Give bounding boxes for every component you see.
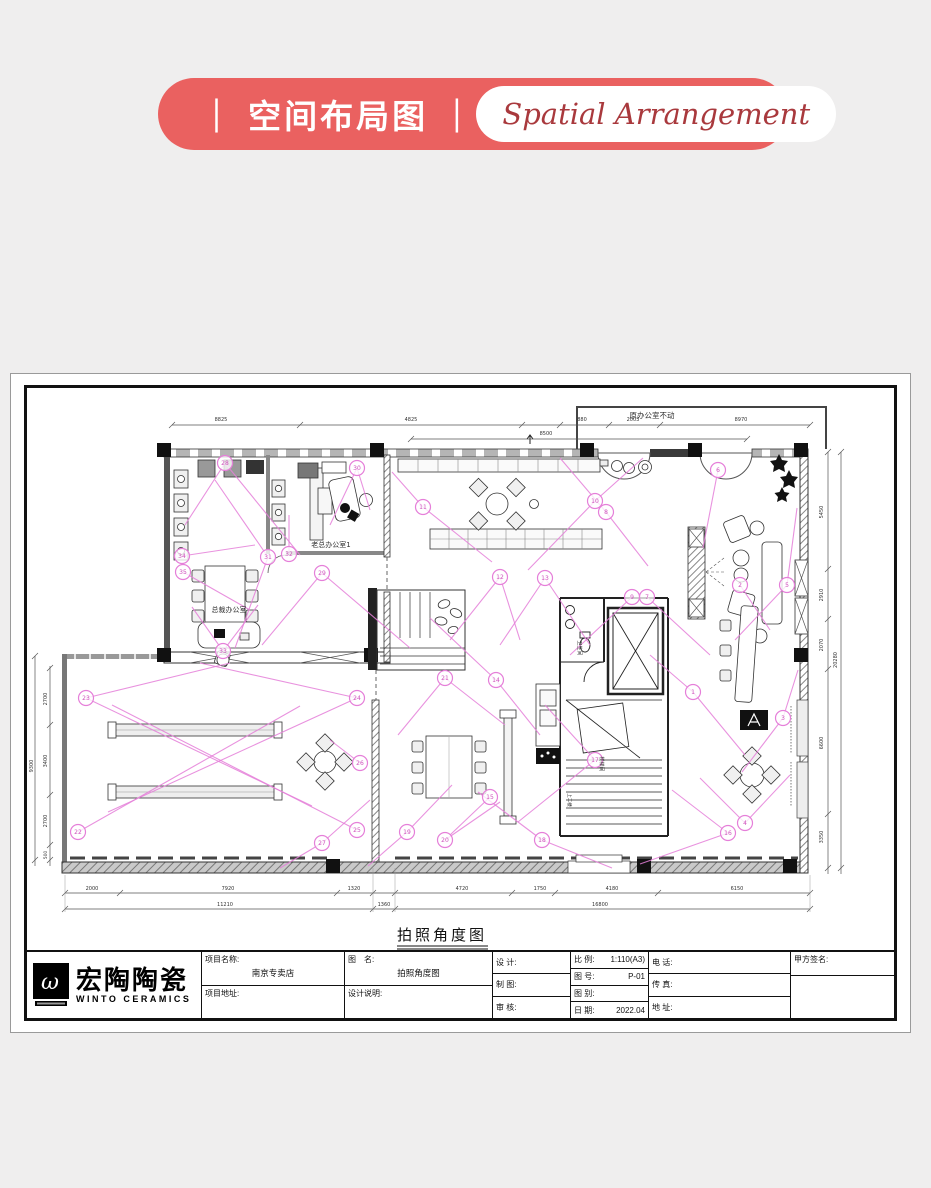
signature-cell: 甲方签名:: [791, 952, 894, 1018]
banner-subtitle-pill: Spatial Arrangement: [476, 86, 836, 142]
plan-annotation: 7920: [222, 886, 235, 892]
banner-title: ｜ 空间布局图 ｜: [200, 90, 476, 138]
camera-marker: 10: [588, 494, 603, 509]
sheet-frame: 1234567891011121314151617181920212223242…: [24, 385, 897, 1021]
plan-annotation: 16800: [592, 902, 608, 908]
camera-marker: 5: [780, 578, 795, 593]
svg-text:24: 24: [353, 695, 361, 702]
svg-text:18: 18: [538, 837, 546, 844]
sight-line: [398, 678, 445, 735]
camera-marker: 25: [350, 823, 365, 838]
type-label: 图 别:: [574, 988, 594, 999]
design-label: 设 计:: [496, 957, 516, 968]
plan-annotation: 上二楼: [566, 793, 573, 807]
signature-space: [791, 976, 894, 1018]
plan-annotation: 2000: [86, 886, 99, 892]
plan-annotation: 6600: [819, 737, 825, 750]
drawing-name-value: 拍照角度图: [348, 967, 489, 979]
plan-annotation: 11210: [217, 902, 233, 908]
draft-label: 制 图:: [496, 979, 516, 990]
sight-line: [262, 573, 322, 645]
plan-annotation: 500: [43, 851, 49, 860]
camera-marker: 33: [216, 644, 231, 659]
camera-marker: 13: [538, 571, 553, 586]
svg-text:33: 33: [219, 648, 227, 655]
scale-label: 比 例:: [574, 954, 594, 965]
svg-text:17: 17: [591, 757, 599, 764]
svg-text:27: 27: [318, 840, 326, 847]
camera-marker: 23: [79, 691, 94, 706]
plan-annotation: 卫生间: [576, 640, 583, 655]
camera-marker: 3: [776, 711, 791, 726]
camera-marker: 34: [175, 549, 190, 564]
sight-line: [496, 680, 540, 735]
staff-cell: 设 计: 制 图: 审 核:: [493, 952, 571, 1018]
contact-cell: 电 话: 传 真: 地 址:: [649, 952, 791, 1018]
svg-text:22: 22: [74, 829, 82, 836]
plan-annotation: 1750: [534, 886, 547, 892]
camera-marker: 31: [261, 550, 276, 565]
svg-text:25: 25: [353, 827, 361, 834]
plan-annotation: 3400: [43, 755, 49, 768]
svg-text:20: 20: [441, 837, 449, 844]
camera-marker: 26: [353, 756, 368, 771]
svg-text:16: 16: [724, 830, 732, 837]
sight-line: [445, 802, 500, 840]
plan-annotation: 8500: [540, 431, 553, 437]
svg-text:15: 15: [486, 794, 494, 801]
sight-line: [500, 578, 545, 645]
sight-line: [703, 470, 718, 548]
furniture-layer: [108, 435, 798, 824]
svg-text:28: 28: [221, 460, 229, 467]
section-banner: ｜ 空间布局图 ｜ Spatial Arrangement: [158, 78, 788, 150]
svg-text:19: 19: [403, 829, 411, 836]
plan-annotation: 1360: [378, 902, 391, 908]
camera-marker: 19: [400, 825, 415, 840]
camera-marker: 11: [416, 500, 431, 515]
plan-annotation: 2003: [627, 417, 640, 423]
camera-marker: 6: [711, 463, 726, 478]
sight-line: [606, 512, 648, 566]
logo-cell: ω 宏陶陶瓷 WINTO CERAMICS: [27, 952, 202, 1018]
plan-annotation: 880: [577, 417, 587, 423]
svg-text:5: 5: [785, 582, 789, 589]
camera-marker: 29: [315, 566, 330, 581]
svg-text:6: 6: [716, 467, 720, 474]
svg-text:11: 11: [419, 504, 427, 511]
camera-marker: 20: [438, 833, 453, 848]
svg-text:23: 23: [82, 695, 90, 702]
plan-caption: 拍照角度图: [397, 926, 487, 944]
svg-text:9: 9: [630, 594, 634, 601]
plan-annotation: 2070: [819, 639, 825, 652]
winto-logo-icon: ω: [33, 963, 69, 1007]
svg-text:1: 1: [691, 689, 695, 696]
camera-marker: 27: [315, 836, 330, 851]
logo-en: WINTO CERAMICS: [76, 994, 191, 1004]
date-label: 日 期:: [574, 1005, 594, 1016]
plan-annotation: 3350: [819, 831, 825, 844]
camera-marker: 1: [686, 685, 701, 700]
svg-text:10: 10: [591, 498, 599, 505]
floor-plan: 1234567891011121314151617181920212223242…: [27, 388, 896, 954]
camera-marker: 4: [738, 816, 753, 831]
camera-marker: 7: [640, 590, 655, 605]
svg-text:7: 7: [645, 594, 649, 601]
fax-label: 传 真:: [652, 979, 672, 990]
sight-line: [450, 797, 490, 835]
sight-line: [545, 578, 590, 645]
camera-marker: 24: [350, 691, 365, 706]
camera-marker: 8: [599, 505, 614, 520]
sight-line: [215, 480, 268, 557]
camera-marker: 9: [625, 590, 640, 605]
plan-annotation: 5450: [819, 506, 825, 519]
sight-line: [518, 760, 595, 822]
project-name-row: 项目名称: 南京专卖店: [202, 952, 344, 986]
camera-marker: 16: [721, 826, 736, 841]
sight-line: [322, 573, 410, 648]
svg-text:12: 12: [496, 574, 504, 581]
plan-annotation: 9300: [29, 760, 35, 773]
svg-text:30: 30: [353, 465, 361, 472]
svg-text:8: 8: [604, 509, 608, 516]
plan-annotation: 2910: [819, 589, 825, 602]
drawing-cell: 图 名: 拍照角度图 设计说明:: [345, 952, 493, 1018]
svg-text:35: 35: [179, 569, 187, 576]
project-addr-label: 项目地址:: [205, 988, 341, 999]
plan-annotation: 20280: [833, 652, 839, 668]
plan-annotation: 2700: [43, 815, 49, 828]
camera-marker: 32: [282, 547, 297, 562]
plan-annotation: 6150: [731, 886, 744, 892]
camera-marker: 12: [493, 570, 508, 585]
caption-underline: [397, 946, 488, 949]
project-cell: 项目名称: 南京专卖店 项目地址:: [202, 952, 345, 1018]
sign-label: 甲方签名:: [794, 954, 891, 965]
camera-marker: 22: [71, 825, 86, 840]
drawing-name-label: 图 名:: [348, 954, 489, 965]
svg-text:26: 26: [356, 760, 364, 767]
design-note-label: 设计说明:: [348, 988, 489, 999]
page: { "banner": { "title": "｜ 空间布局图 ｜", "sub…: [0, 0, 931, 1188]
sight-line: [86, 663, 230, 698]
tel-label: 电 话:: [652, 957, 672, 968]
camera-marker: 21: [438, 671, 453, 686]
stairs-elevator: [560, 598, 668, 836]
svg-text:31: 31: [264, 554, 272, 561]
sight-line: [322, 800, 370, 843]
project-addr-row: 项目地址:: [202, 986, 344, 1019]
camera-marker: 15: [483, 790, 498, 805]
sight-line: [430, 618, 496, 680]
meta-cell: 比 例: 1:110(A3) 图 号: P-01 图 别: 日 期: 2022.…: [571, 952, 649, 1018]
svg-text:ω: ω: [41, 970, 59, 995]
no-value: P-01: [628, 972, 645, 981]
camera-marker: 18: [535, 833, 550, 848]
camera-marker: 14: [489, 673, 504, 688]
plan-annotation: 2700: [43, 693, 49, 706]
project-name-label: 项目名称:: [205, 954, 341, 965]
banner-subtitle: Spatial Arrangement: [502, 97, 810, 131]
drawing-name-row: 图 名: 拍照角度图: [345, 952, 492, 986]
project-name-value: 南京专卖店: [205, 967, 341, 979]
svg-text:32: 32: [285, 551, 293, 558]
plan-annotation: 4825: [405, 417, 418, 423]
date-value: 2022.04: [616, 1006, 645, 1015]
svg-text:3: 3: [781, 715, 785, 722]
sight-line: [450, 577, 500, 640]
plan-annotation: 总裁办公室: [212, 605, 247, 614]
plan-annotation: 4720: [456, 886, 469, 892]
camera-marker: 2: [733, 578, 748, 593]
plan-annotation: 老总办公室1: [311, 540, 350, 549]
design-note-row: 设计说明:: [345, 986, 492, 1019]
plan-annotation: 8825: [215, 417, 228, 423]
svg-text:4: 4: [743, 820, 747, 827]
svg-text:14: 14: [492, 677, 500, 684]
title-block: ω 宏陶陶瓷 WINTO CERAMICS 项目名称: 南京专卖店 项目地址: …: [27, 950, 894, 1018]
sight-line: [672, 790, 728, 833]
plan-annotation: 4180: [606, 886, 619, 892]
drawing-sheet: 1234567891011121314151617181920212223242…: [10, 373, 911, 1033]
sight-line: [200, 663, 357, 698]
svg-text:13: 13: [541, 575, 549, 582]
camera-marker: 30: [350, 461, 365, 476]
svg-text:21: 21: [441, 675, 449, 682]
review-label: 审 核:: [496, 1002, 516, 1013]
camera-marker: 35: [176, 565, 191, 580]
scale-value: 1:110(A3): [610, 955, 645, 964]
svg-text:34: 34: [178, 553, 186, 560]
svg-text:29: 29: [318, 570, 326, 577]
no-label: 图 号:: [574, 971, 594, 982]
plan-annotation: 楼梯间: [598, 756, 605, 771]
logo-cn: 宏陶陶瓷: [76, 967, 191, 993]
camera-marker: 28: [218, 456, 233, 471]
addr-label: 地 址:: [652, 1002, 672, 1013]
sight-line: [182, 545, 255, 556]
plan-annotation: 1320: [348, 886, 361, 892]
svg-text:2: 2: [738, 582, 742, 589]
plan-annotation: 8970: [735, 417, 748, 423]
